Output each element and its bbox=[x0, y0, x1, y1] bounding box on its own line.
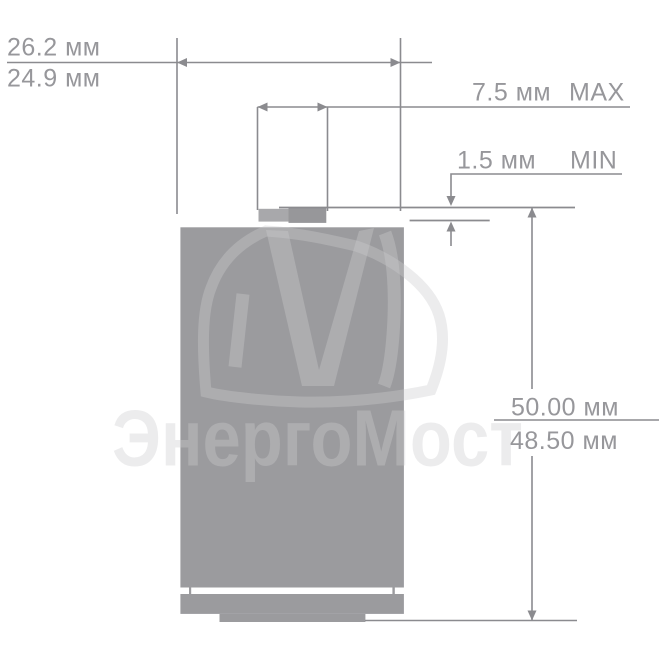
svg-text:1.5 мм: 1.5 мм bbox=[457, 147, 536, 175]
svg-text:MIN: MIN bbox=[570, 147, 617, 175]
svg-text:ЭнергоМост: ЭнергоМост bbox=[112, 393, 523, 483]
svg-text:48.50 мм: 48.50 мм bbox=[510, 427, 618, 455]
svg-text:24.9 мм: 24.9 мм bbox=[7, 65, 100, 93]
svg-text:26.2 мм: 26.2 мм bbox=[7, 34, 100, 62]
svg-text:50.00 мм: 50.00 мм bbox=[511, 394, 619, 422]
svg-text:7.5 мм: 7.5 мм bbox=[472, 79, 551, 107]
svg-text:MAX: MAX bbox=[569, 79, 625, 107]
